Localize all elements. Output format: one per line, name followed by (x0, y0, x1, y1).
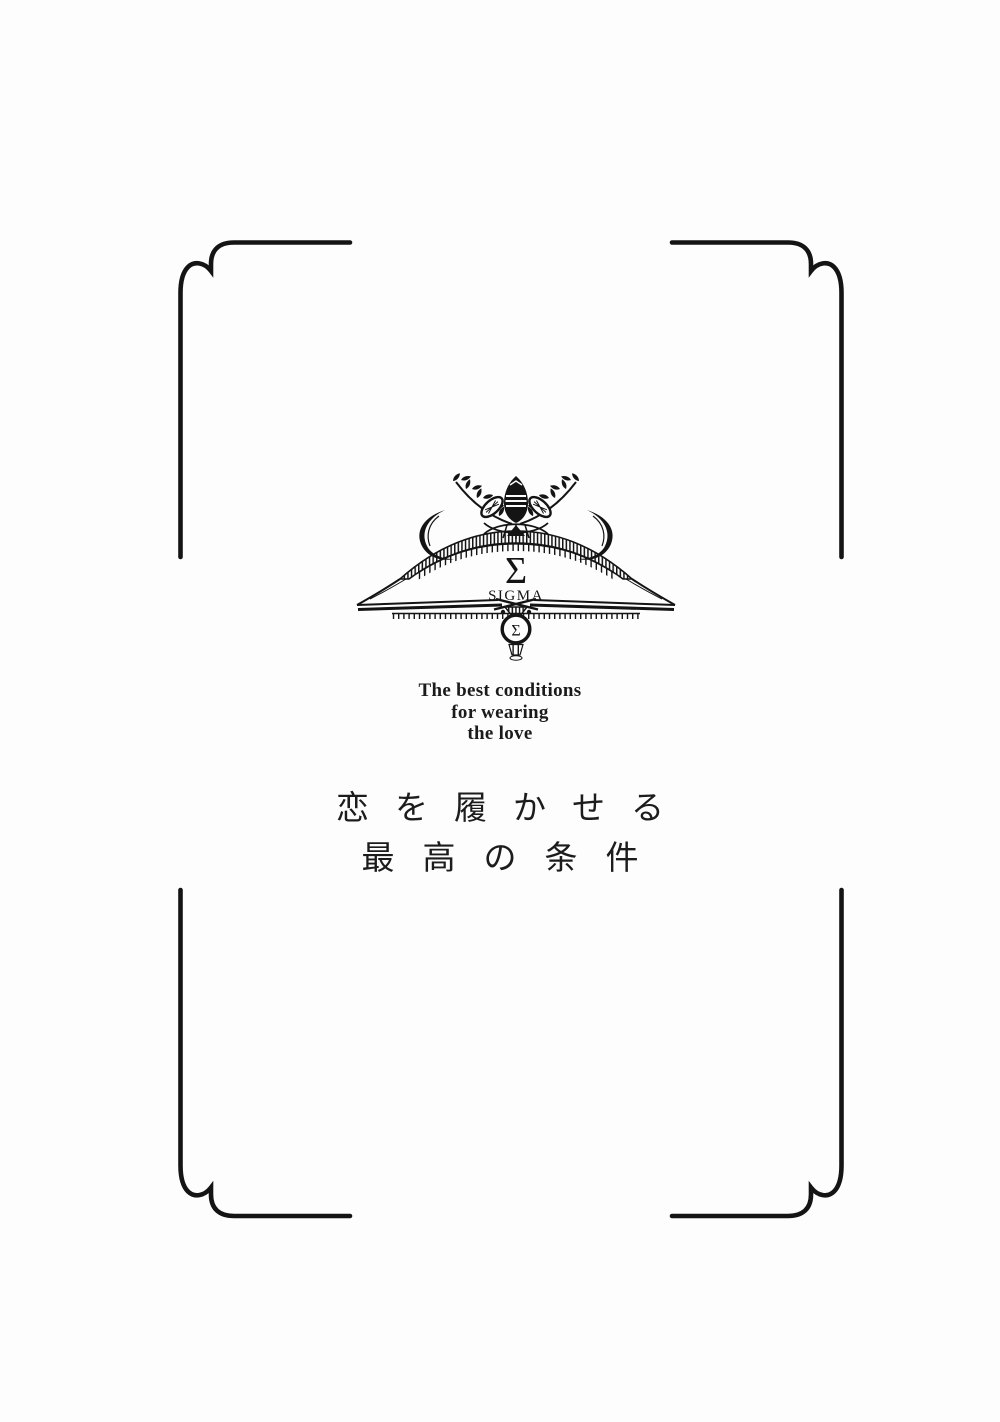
frame-corner-top-right (672, 243, 842, 558)
english-subtitle-line-2: for wearing (0, 702, 1000, 724)
japanese-title-line-2: 最高の条件 (0, 838, 1000, 878)
frame-corner-bottom-right (672, 890, 842, 1216)
english-subtitle-line-3: the love (0, 723, 1000, 745)
japanese-title-line-1: 恋を履かせる (0, 788, 1000, 828)
frame-corner-top-left (181, 243, 351, 558)
large-sigma-glyph: Σ (505, 550, 527, 592)
sigma-wordmark: SIGMA (488, 588, 544, 604)
book-title-page: Σ SIGMA Σ The best conditions (0, 0, 1000, 1422)
japanese-title: 恋を履かせる 最高の条件 (0, 788, 1000, 878)
japanese-title-line-2-text: 最高の条件 (362, 839, 667, 876)
medallion-sigma-glyph: Σ (511, 623, 520, 640)
plume-icon (504, 476, 528, 523)
frame-corner-bottom-left (181, 890, 351, 1216)
japanese-title-line-1-text: 恋を履かせる (336, 789, 690, 826)
english-subtitle: The best conditions for wearing the love (0, 680, 1000, 745)
sigma-crest-emblem: Σ SIGMA Σ (346, 466, 686, 666)
english-subtitle-line-1: The best conditions (0, 680, 1000, 702)
